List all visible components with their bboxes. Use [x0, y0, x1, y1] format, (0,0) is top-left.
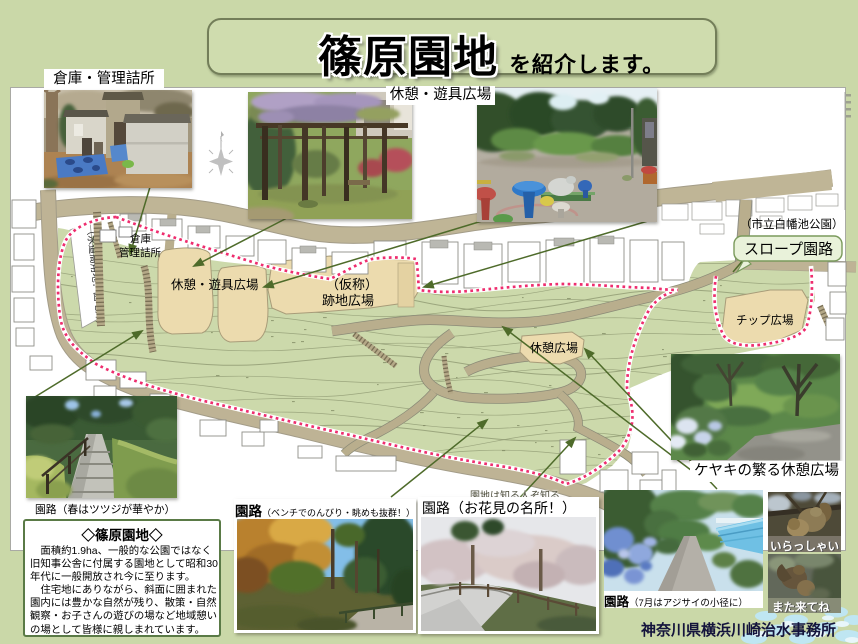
svg-text:スロープ園路: スロープ園路: [744, 241, 833, 258]
svg-text:（市立白幡池公園）: （市立白幡池公園）: [740, 217, 844, 231]
svg-text:休憩広場: 休憩広場: [530, 340, 578, 355]
svg-text:管理詰所: 管理詰所: [119, 246, 161, 259]
svg-text:チップ広場: チップ広場: [736, 314, 794, 327]
svg-text:また来てね: また来てね: [772, 600, 830, 613]
svg-text:跡地広場: 跡地広場: [322, 293, 374, 308]
svg-text:（仮称）: （仮称）: [326, 277, 378, 292]
svg-text:倉庫: 倉庫: [130, 232, 151, 245]
svg-text:いらっしゃい: いらっしゃい: [770, 540, 839, 552]
svg-text:休憩・遊具広場: 休憩・遊具広場: [171, 277, 259, 292]
